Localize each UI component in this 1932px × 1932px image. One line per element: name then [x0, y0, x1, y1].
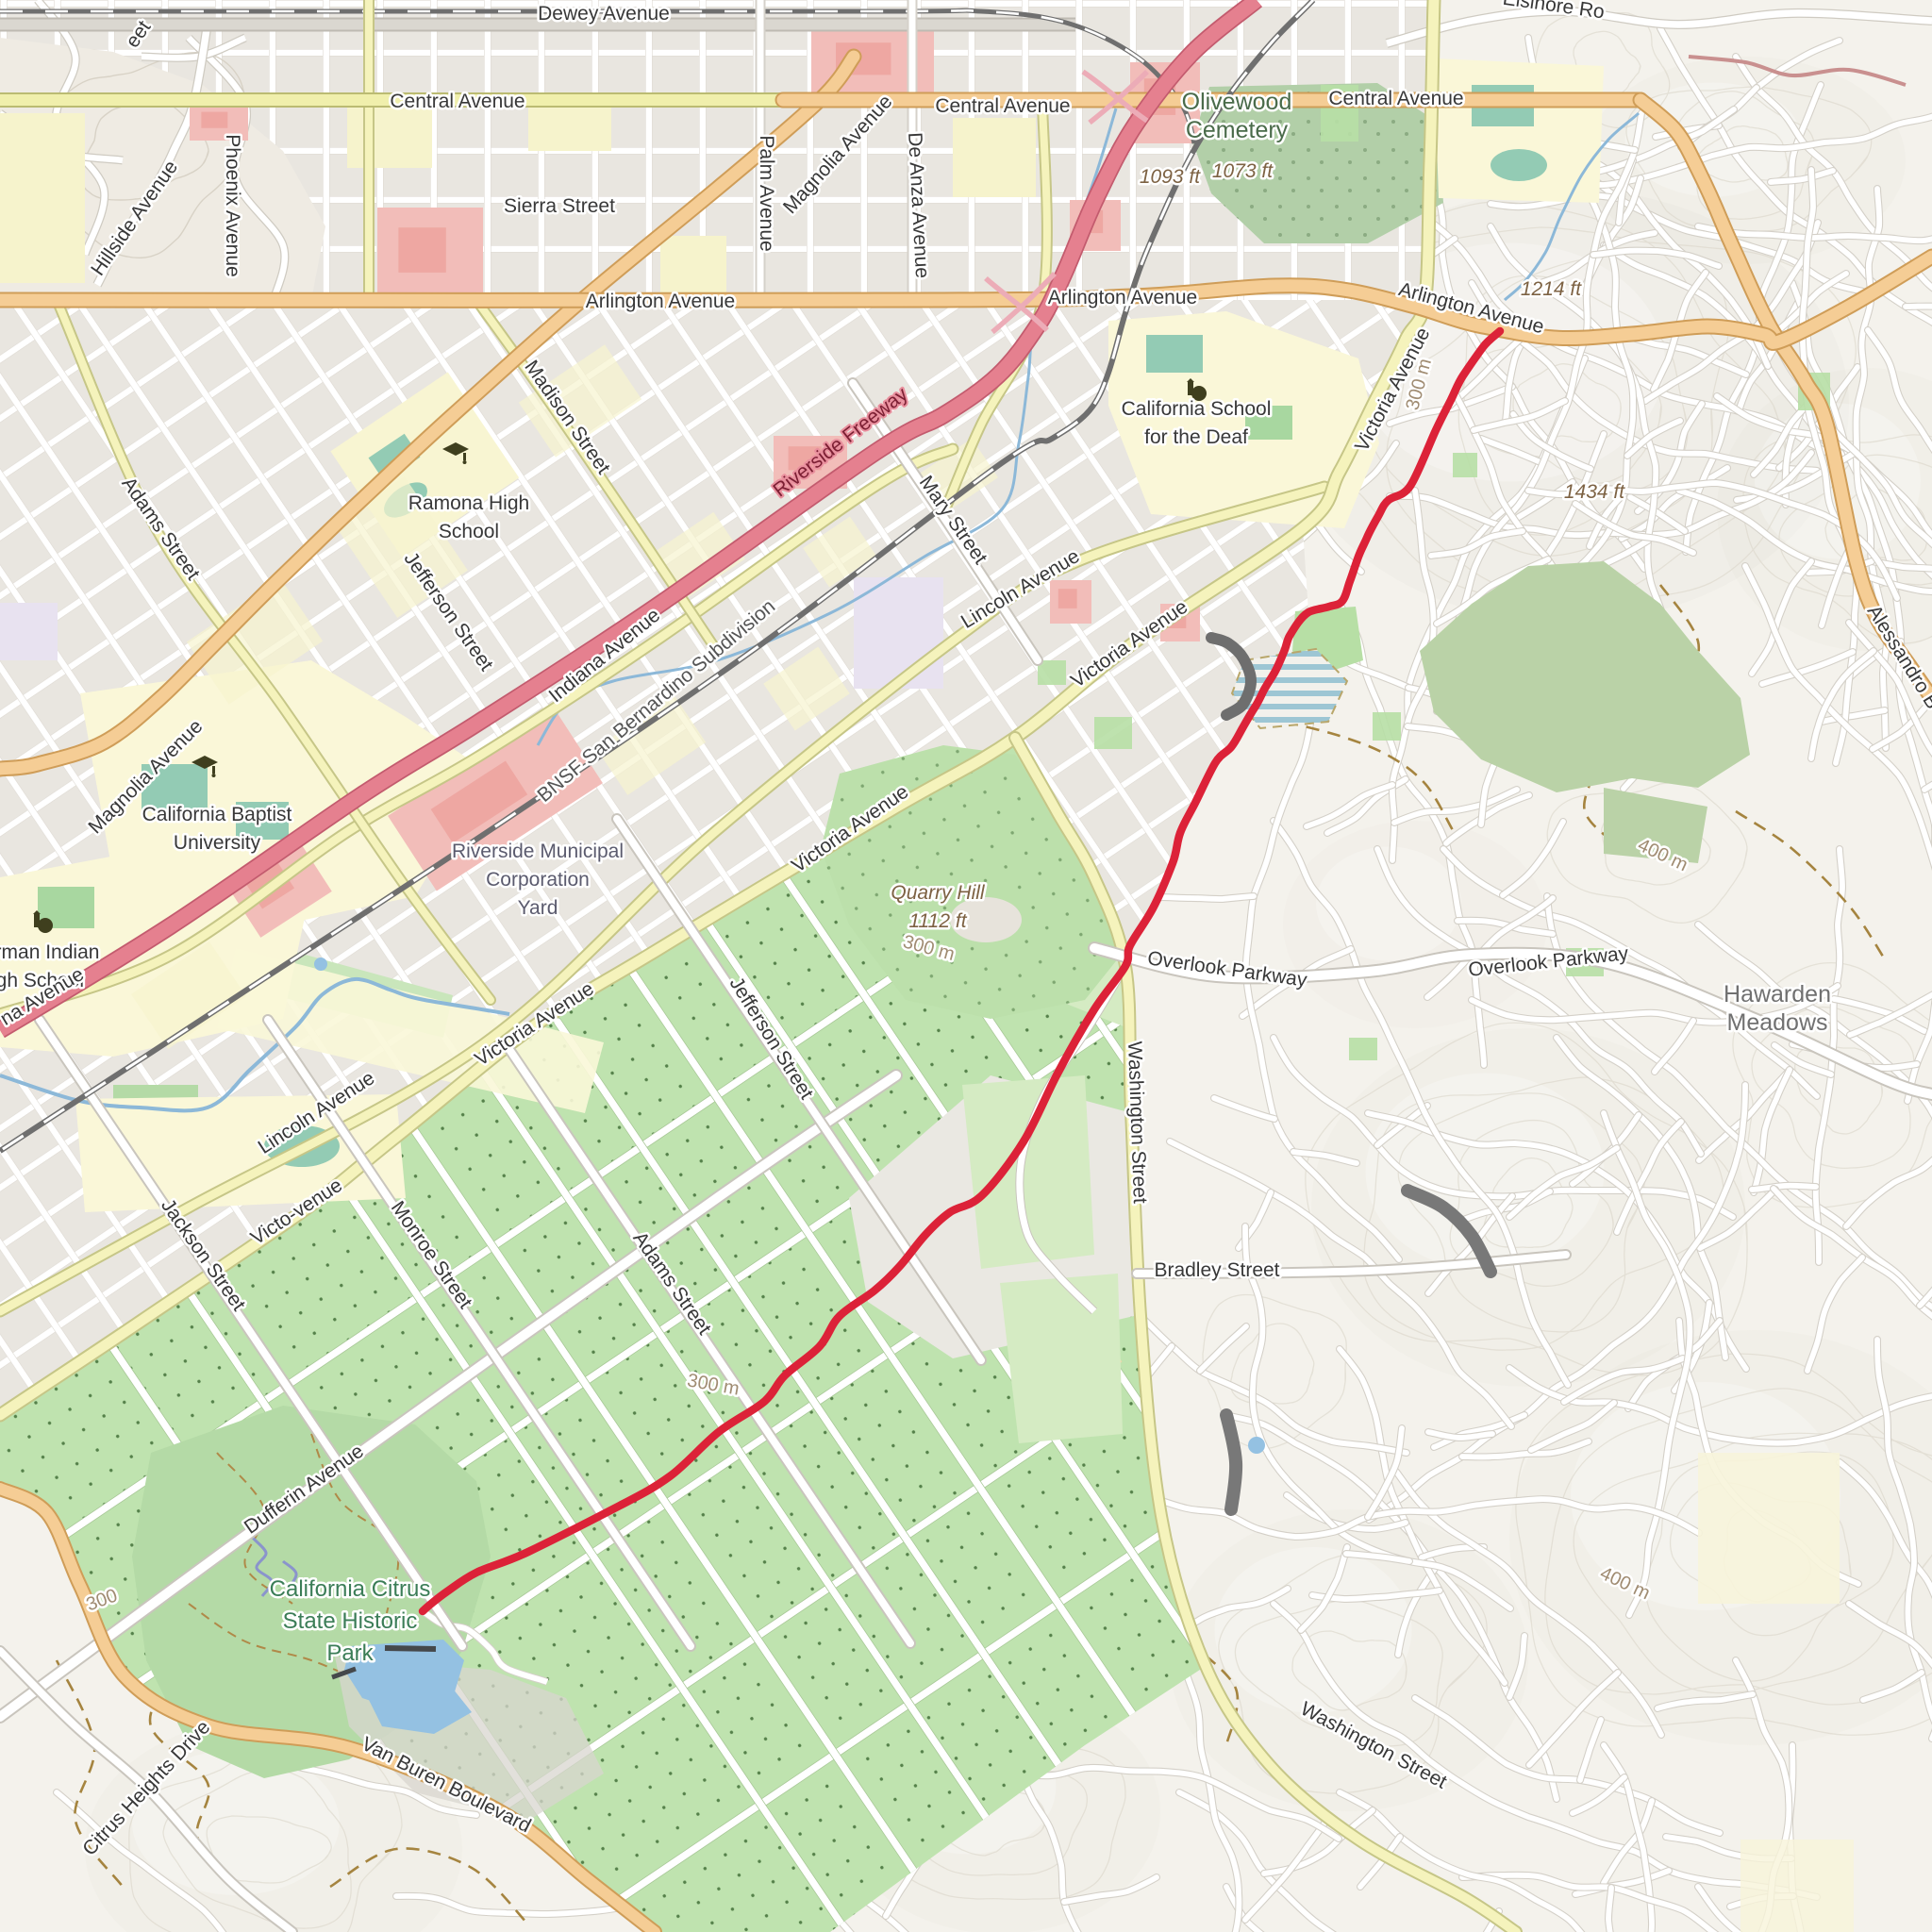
svg-text:Corporation: Corporation — [486, 869, 590, 891]
svg-text:Arlington Avenue: Arlington Avenue — [586, 291, 735, 312]
svg-text:1434 ft: 1434 ft — [1564, 481, 1625, 503]
svg-text:rman Indian: rman Indian — [0, 941, 99, 963]
svg-text:Yard: Yard — [518, 897, 558, 919]
svg-text:Sierra Street: Sierra Street — [504, 195, 615, 217]
svg-text:Olivewood: Olivewood — [1182, 89, 1292, 115]
svg-text:State Historic: State Historic — [283, 1608, 418, 1634]
svg-text:Dewey Avenue: Dewey Avenue — [538, 3, 670, 25]
svg-text:California School: California School — [1122, 398, 1272, 420]
svg-text:Palm Avenue: Palm Avenue — [756, 135, 777, 251]
svg-text:Central Avenue: Central Avenue — [1328, 88, 1463, 109]
svg-text:California Citrus: California Citrus — [270, 1576, 431, 1602]
svg-text:Meadows: Meadows — [1727, 1009, 1828, 1036]
svg-text:Bradley Street: Bradley Street — [1154, 1259, 1279, 1281]
svg-text:Central Avenue: Central Avenue — [390, 91, 525, 112]
svg-text:Quarry Hill: Quarry Hill — [891, 882, 986, 904]
svg-text:Central Avenue: Central Avenue — [935, 95, 1070, 117]
svg-text:School: School — [439, 521, 499, 542]
svg-text:1093 ft: 1093 ft — [1140, 166, 1201, 188]
svg-text:Riverside Municipal: Riverside Municipal — [452, 841, 624, 862]
svg-text:1214 ft: 1214 ft — [1521, 278, 1582, 300]
svg-text:for the Deaf: for the Deaf — [1144, 426, 1248, 448]
svg-text:Park: Park — [326, 1641, 374, 1666]
svg-text:Phoenix Avenue: Phoenix Avenue — [222, 134, 243, 276]
svg-text:1112 ft: 1112 ft — [908, 910, 967, 932]
svg-text:Ramona High: Ramona High — [408, 492, 529, 514]
svg-text:California Baptist: California Baptist — [142, 804, 292, 825]
svg-text:Arlington Avenue: Arlington Avenue — [1048, 287, 1197, 308]
svg-text:Cemetery: Cemetery — [1186, 117, 1289, 143]
svg-text:1073 ft: 1073 ft — [1212, 160, 1274, 182]
svg-text:University: University — [174, 832, 261, 854]
svg-text:Hawarden: Hawarden — [1724, 981, 1831, 1008]
